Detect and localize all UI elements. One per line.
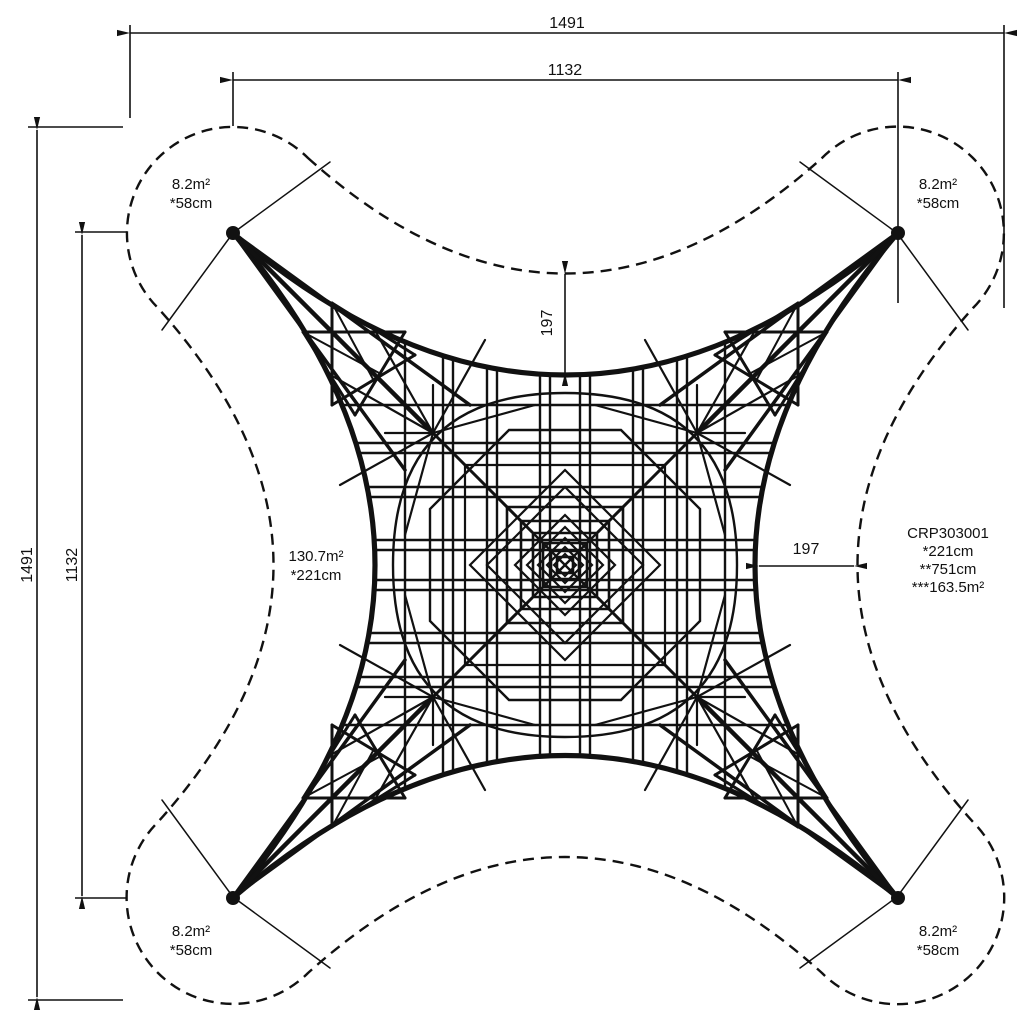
rope [233, 660, 405, 897]
corner-area-value: 8.2m² [170, 175, 213, 194]
product-spec-2: **751cm [907, 561, 989, 579]
rope [660, 725, 897, 897]
dimension-label-top-outer: 1491 [549, 16, 585, 32]
anchor-post [226, 891, 240, 905]
rope [233, 897, 330, 968]
rope [897, 800, 968, 897]
dimension-label-clearance-right: 197 [793, 542, 820, 558]
rope [162, 233, 233, 330]
technical-drawing-sheet: 1491 1132 1491 1132 197 197 8.2m² *58cm … [0, 0, 1024, 1023]
corner-area-value: 8.2m² [170, 922, 213, 941]
corner-height-value: *58cm [170, 194, 213, 213]
net-area-value: 130.7m² [288, 547, 343, 566]
rope [800, 897, 897, 968]
corner-area-value: 8.2m² [917, 922, 960, 941]
rope [725, 660, 897, 897]
net-height-value: *221cm [288, 566, 343, 585]
rope [897, 233, 968, 330]
rope [233, 233, 405, 470]
product-label: CRP303001 *221cm **751cm ***163.5m² [907, 525, 989, 597]
rope [725, 233, 897, 470]
rope [233, 725, 470, 897]
net-area-label: 130.7m² *221cm [288, 547, 343, 585]
dimension-label-left-inner: 1132 [65, 548, 81, 582]
rope [162, 800, 233, 897]
corner-label-bottom-left: 8.2m² *58cm [170, 922, 213, 960]
rope [233, 233, 470, 405]
corner-area-value: 8.2m² [917, 175, 960, 194]
dimension-label-top-inner: 1132 [548, 63, 582, 79]
dimension-label-clearance-top: 197 [540, 310, 556, 337]
anchor-post [891, 226, 905, 240]
rope [800, 162, 897, 233]
corner-height-value: *58cm [170, 941, 213, 960]
corner-height-value: *58cm [917, 941, 960, 960]
dimension-label-left-outer: 1491 [20, 547, 36, 583]
anchor-post [226, 226, 240, 240]
dimension-lines [28, 25, 1004, 1000]
corner-label-top-right: 8.2m² *58cm [917, 175, 960, 213]
anchor-post [891, 891, 905, 905]
product-code: CRP303001 [907, 525, 989, 543]
corner-label-top-left: 8.2m² *58cm [170, 175, 213, 213]
drawing-canvas [0, 0, 1024, 1023]
product-spec-3: ***163.5m² [907, 579, 989, 597]
corner-height-value: *58cm [917, 194, 960, 213]
product-spec-1: *221cm [907, 543, 989, 561]
corner-label-bottom-right: 8.2m² *58cm [917, 922, 960, 960]
rope [660, 233, 897, 405]
rope [233, 162, 330, 233]
